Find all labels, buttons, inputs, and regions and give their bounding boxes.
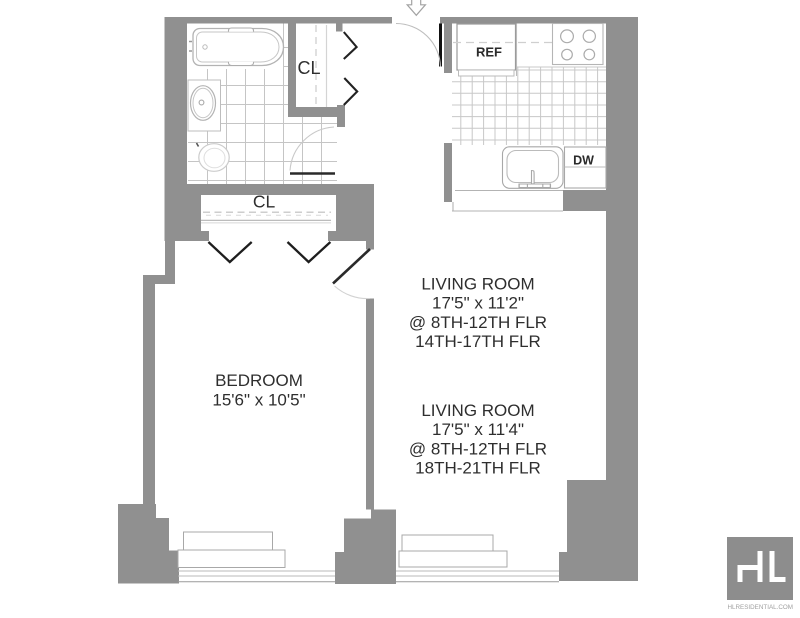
svg-text:17'5" x 11'4": 17'5" x 11'4"	[432, 420, 524, 439]
svg-text:BEDROOM: BEDROOM	[215, 371, 303, 390]
svg-text:CL: CL	[297, 58, 320, 78]
svg-text:HLRESIDENTIAL.COM: HLRESIDENTIAL.COM	[728, 604, 794, 611]
svg-text:DW: DW	[573, 154, 594, 168]
svg-text:@ 8TH-12TH FLR: @ 8TH-12TH FLR	[409, 440, 547, 459]
svg-text:@ 8TH-12TH FLR: @ 8TH-12TH FLR	[409, 313, 547, 332]
svg-text:CL: CL	[253, 192, 276, 212]
svg-text:14TH-17TH FLR: 14TH-17TH FLR	[415, 332, 541, 351]
svg-text:15'6" x 10'5": 15'6" x 10'5"	[212, 391, 305, 410]
svg-text:17'5" x 11'2": 17'5" x 11'2"	[432, 294, 524, 313]
svg-text:18TH-21TH FLR: 18TH-21TH FLR	[415, 459, 541, 478]
svg-text:LIVING ROOM: LIVING ROOM	[421, 275, 534, 294]
svg-text:REF: REF	[476, 45, 502, 60]
svg-text:LIVING ROOM: LIVING ROOM	[421, 401, 534, 420]
